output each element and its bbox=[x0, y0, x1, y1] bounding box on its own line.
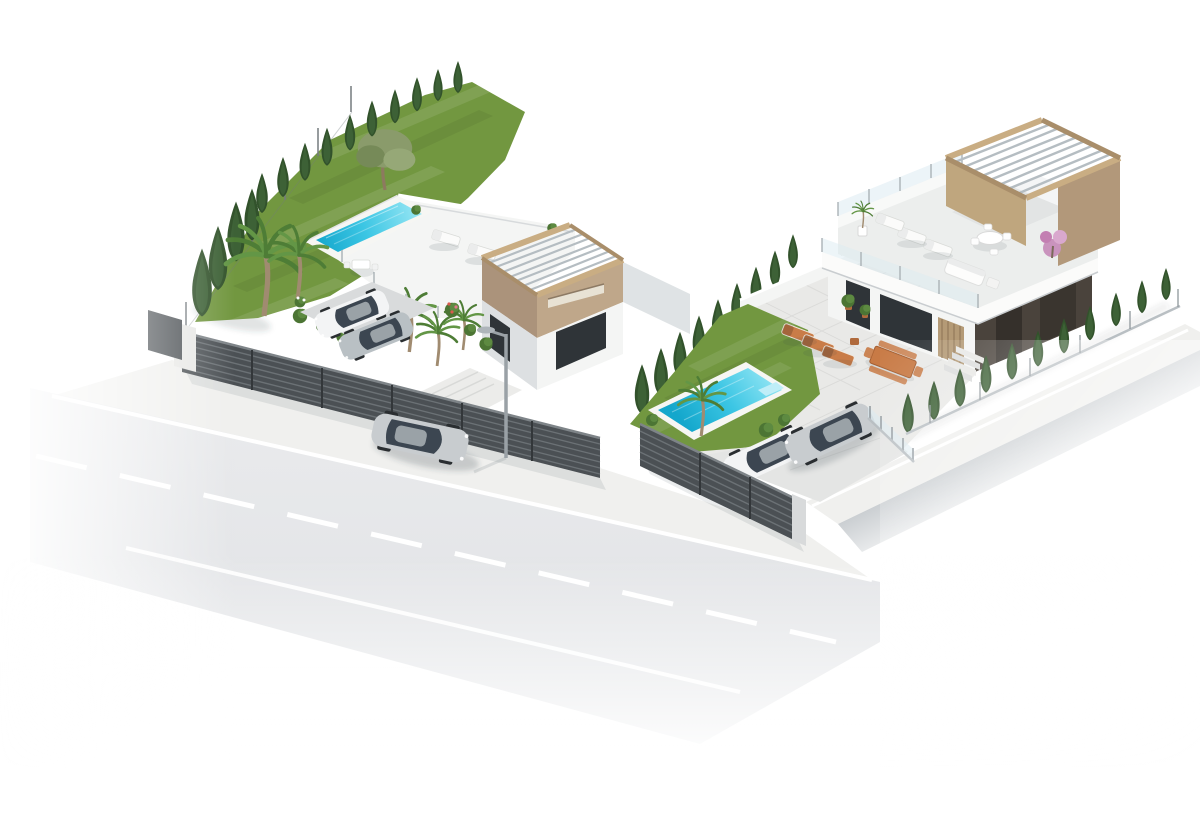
fence-corner-pillar bbox=[792, 494, 806, 546]
pool-shrub bbox=[759, 423, 773, 437]
render-scene bbox=[0, 0, 1200, 840]
side-table bbox=[850, 338, 859, 345]
villa-render-canvas bbox=[0, 0, 1200, 840]
pool-shrub bbox=[778, 414, 790, 426]
fade-bottom-right bbox=[880, 340, 1200, 840]
lamp-head bbox=[477, 327, 495, 334]
pool-shrub bbox=[646, 414, 658, 426]
roof-planter bbox=[411, 205, 421, 215]
villaA-wing bbox=[623, 262, 690, 334]
